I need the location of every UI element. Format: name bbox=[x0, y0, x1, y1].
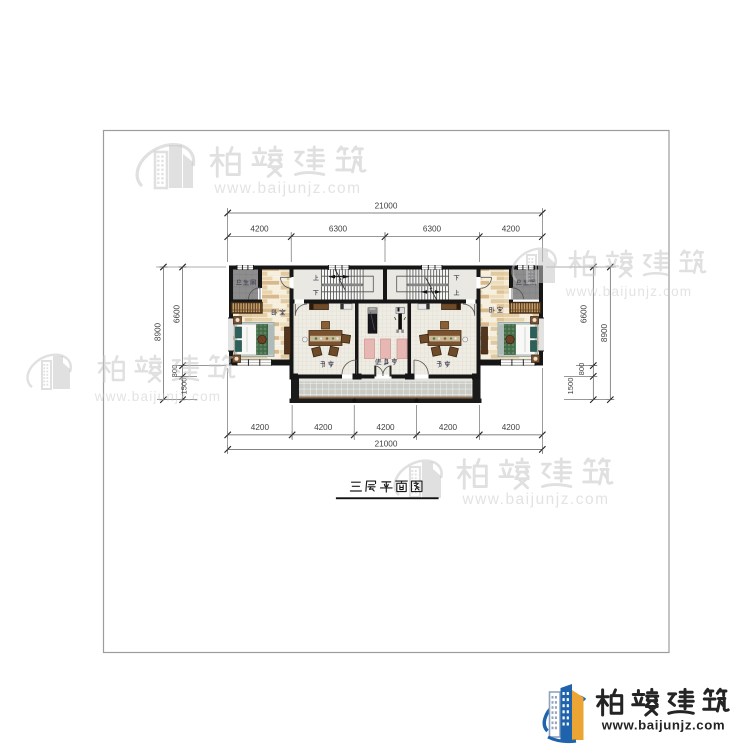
svg-text:4200: 4200 bbox=[376, 423, 395, 432]
svg-text:www.baijunjz.com: www.baijunjz.com bbox=[565, 284, 693, 299]
svg-text:www.baijunjz.com: www.baijunjz.com bbox=[461, 491, 609, 508]
svg-text:8900: 8900 bbox=[154, 322, 163, 341]
svg-text:6300: 6300 bbox=[423, 225, 442, 234]
svg-text:21000: 21000 bbox=[375, 439, 398, 448]
svg-text:6600: 6600 bbox=[173, 304, 182, 323]
svg-text:4200: 4200 bbox=[250, 225, 269, 234]
svg-text:www.baijunjz.com: www.baijunjz.com bbox=[213, 180, 361, 197]
svg-text:4200: 4200 bbox=[502, 423, 521, 432]
svg-text:4200: 4200 bbox=[502, 225, 521, 234]
svg-text:4200: 4200 bbox=[251, 423, 270, 432]
svg-text:8900: 8900 bbox=[600, 323, 609, 342]
svg-text:800: 800 bbox=[577, 363, 586, 376]
svg-text:4200: 4200 bbox=[439, 423, 458, 432]
svg-text:4200: 4200 bbox=[314, 423, 333, 432]
svg-text:21000: 21000 bbox=[375, 202, 398, 211]
svg-text:6600: 6600 bbox=[580, 304, 589, 323]
svg-text:1500: 1500 bbox=[566, 378, 575, 395]
svg-text:www.baijunjz.com: www.baijunjz.com bbox=[601, 718, 725, 733]
svg-text:www.baijunjz.com: www.baijunjz.com bbox=[94, 389, 222, 404]
svg-text:6300: 6300 bbox=[329, 225, 348, 234]
